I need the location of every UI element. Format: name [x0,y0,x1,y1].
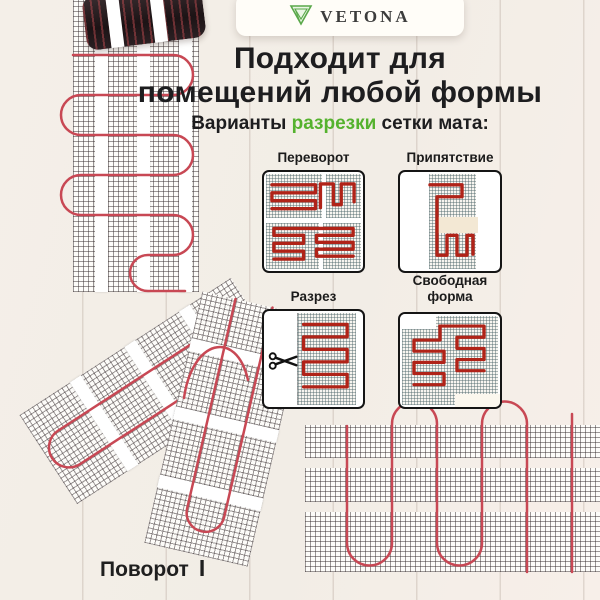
heading-line-2: помещений любой формы [80,76,600,110]
variant-label-free-form: Свободная форма [398,273,502,304]
variant-label-obstacle: Припятствие [398,150,502,166]
bottom-label-marker: I [199,555,205,581]
variant-card-free-form [398,312,502,409]
page-title: Подходит для помещений любой формы [80,42,600,110]
variant-card-cut [262,309,365,409]
subheading: Варианты разрезки сетки мата: [80,113,600,135]
page: { "logo": { "brand": "VETONA", "icon": "… [0,0,600,600]
variant-label-cut: Разрез [262,289,365,305]
gem-triangle-icon [289,4,313,26]
variant-card-obstacle [398,170,502,273]
bottom-label-text: Поворот [100,558,189,581]
subheading-prefix: Варианты [191,113,291,134]
logo-card: VETONA [236,0,464,36]
mat-strap [149,0,168,43]
variant-card-flip [262,170,365,273]
mat-strap [105,0,124,48]
heating-cable-path [305,398,600,588]
subheading-highlight: разрезки [292,113,377,134]
heating-cable-path [264,311,363,407]
mat-photo-bottom-right [305,398,600,588]
subheading-suffix: сетки мата: [376,113,489,134]
heating-cable-path [400,172,500,271]
variant-label-flip: Переворот [262,150,365,166]
junction-cable-arc [178,322,262,406]
bottom-label: ПоворотI [100,555,205,582]
heating-cable-path [400,314,500,407]
heating-cable-path [264,172,363,271]
brand-name: VETONA [320,3,410,27]
heading-line-1: Подходит для [80,42,600,76]
